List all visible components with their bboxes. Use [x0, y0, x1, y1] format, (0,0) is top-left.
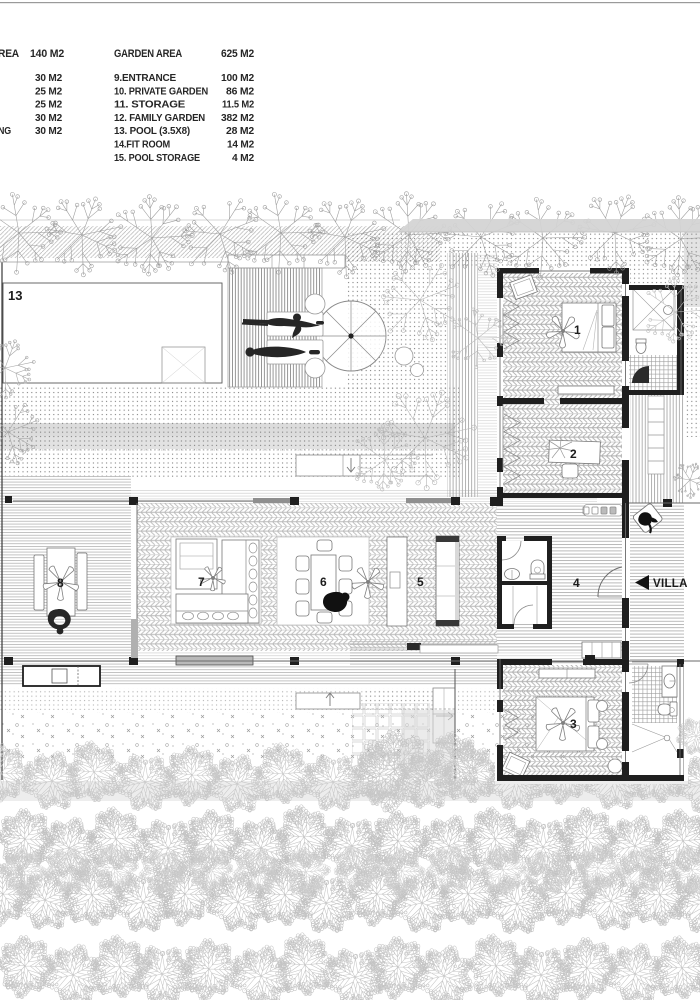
svg-text:4 M2: 4 M2: [232, 152, 254, 164]
svg-text:NG: NG: [0, 125, 11, 137]
svg-text:13. POOL (3.5X8): 13. POOL (3.5X8): [114, 125, 190, 137]
svg-text:30 M2: 30 M2: [35, 112, 62, 124]
svg-text:11. STORAGE: 11. STORAGE: [114, 99, 185, 111]
svg-text:9.ENTRANCE: 9.ENTRANCE: [114, 72, 176, 84]
svg-text:382 M2: 382 M2: [221, 112, 254, 124]
svg-text:15. POOL STORAGE: 15. POOL STORAGE: [114, 152, 200, 164]
svg-text:7: 7: [198, 575, 205, 589]
svg-text:86 M2: 86 M2: [226, 85, 254, 97]
svg-text:11.5 M2: 11.5 M2: [222, 99, 254, 111]
svg-text:140 M2: 140 M2: [30, 48, 64, 60]
svg-text:GARDEN AREA: GARDEN AREA: [114, 48, 182, 60]
svg-text:14 M2: 14 M2: [227, 139, 254, 151]
svg-text:25 M2: 25 M2: [35, 99, 62, 111]
svg-text:3: 3: [570, 717, 577, 731]
svg-text:13: 13: [8, 288, 22, 303]
svg-text:25 M2: 25 M2: [35, 85, 62, 97]
svg-text:10. PRIVATE GARDEN: 10. PRIVATE GARDEN: [114, 85, 208, 97]
svg-text:6: 6: [320, 575, 327, 589]
svg-text:100 M2: 100 M2: [221, 72, 254, 84]
svg-text:30 M2: 30 M2: [35, 125, 62, 137]
svg-text:28 M2: 28 M2: [226, 125, 254, 137]
svg-text:625 M2: 625 M2: [221, 48, 254, 60]
svg-text:4: 4: [573, 576, 580, 590]
svg-text:VILLA: VILLA: [653, 578, 688, 590]
svg-text:5: 5: [417, 575, 424, 589]
svg-text:14.FIT ROOM: 14.FIT ROOM: [114, 139, 170, 151]
svg-text:30 M2: 30 M2: [35, 72, 62, 84]
svg-text:12. FAMILY GARDEN: 12. FAMILY GARDEN: [114, 112, 205, 124]
svg-text:REA: REA: [0, 48, 19, 60]
svg-text:8: 8: [57, 576, 64, 590]
svg-text:2: 2: [570, 447, 577, 461]
svg-text:1: 1: [574, 323, 581, 337]
